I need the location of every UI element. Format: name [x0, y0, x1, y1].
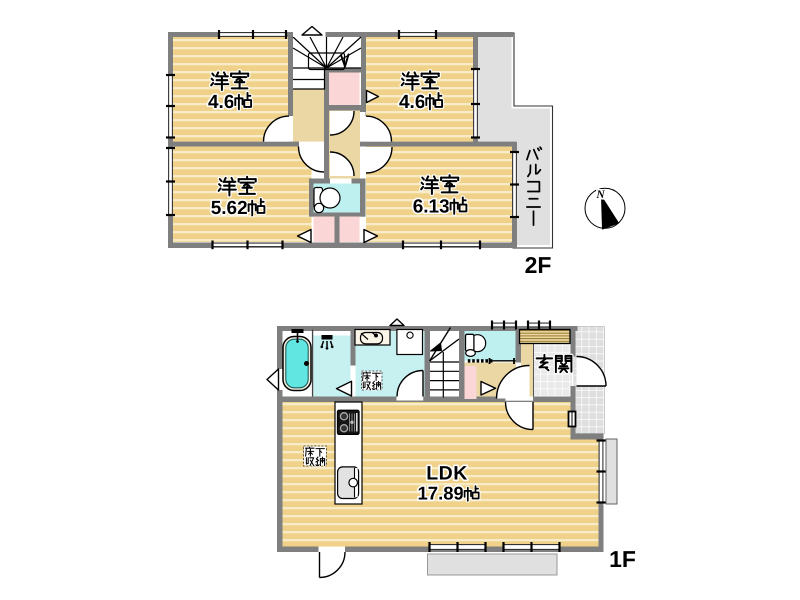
svg-text:4.6: 4.6 — [399, 92, 425, 113]
svg-text:4.6: 4.6 — [208, 92, 234, 113]
svg-text:17.89: 17.89 — [418, 483, 464, 504]
svg-text:N: N — [595, 189, 605, 201]
svg-text:6.13: 6.13 — [413, 197, 450, 218]
svg-text:1F: 1F — [609, 546, 636, 572]
svg-text:5.62: 5.62 — [211, 198, 248, 219]
svg-text:2F: 2F — [525, 252, 552, 278]
svg-text:LDK: LDK — [426, 463, 468, 485]
